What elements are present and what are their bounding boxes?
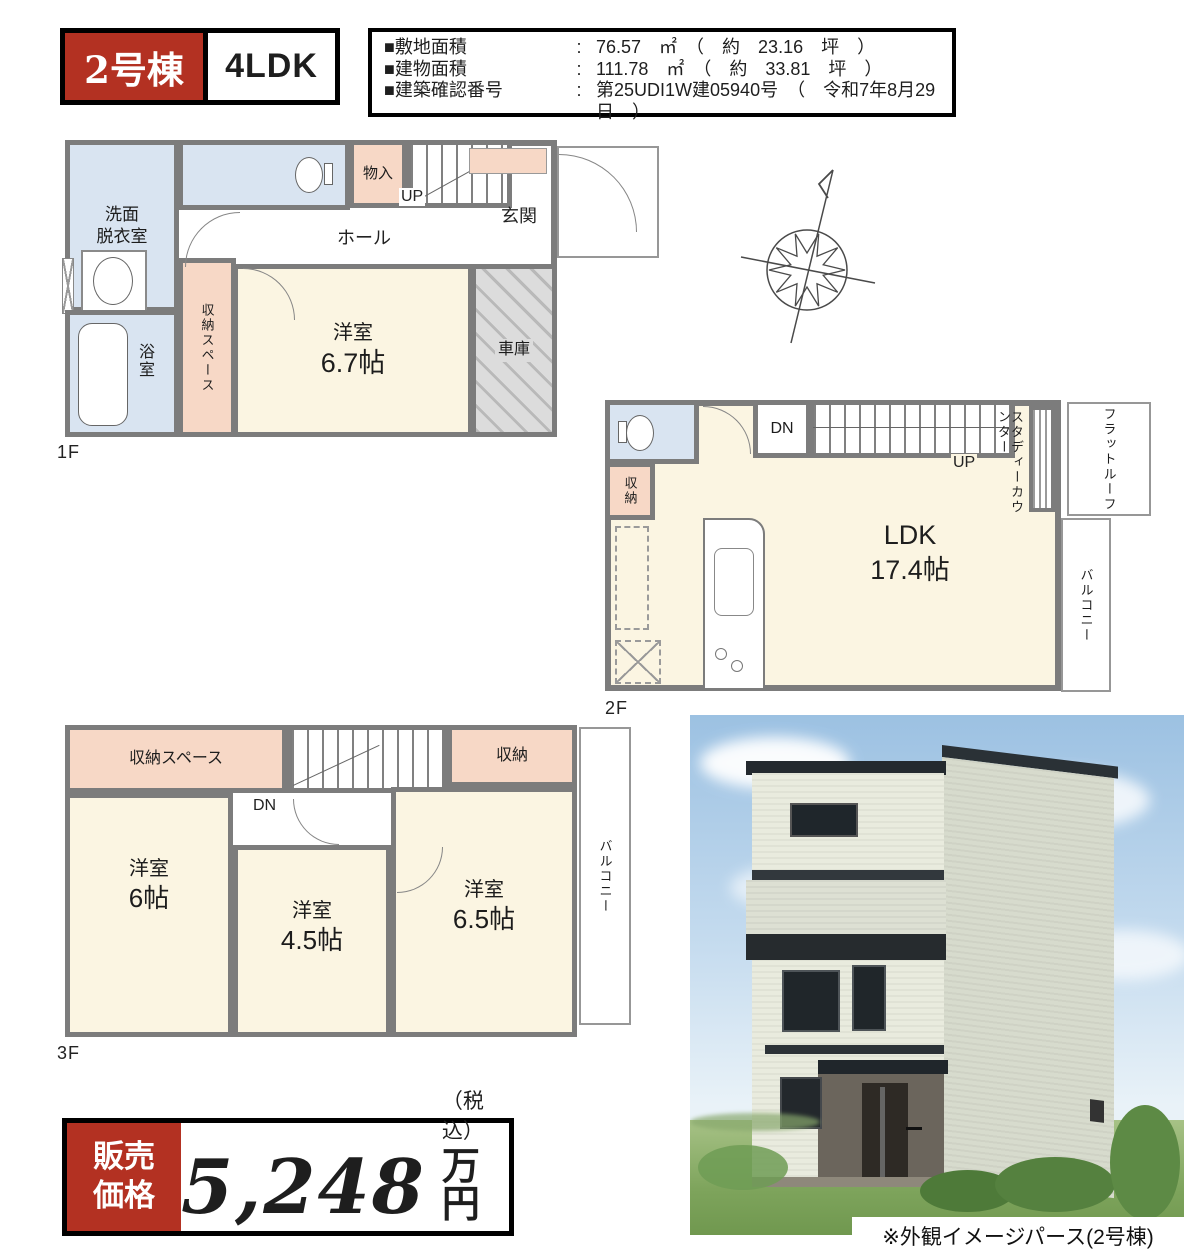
toilet-tank-icon (618, 421, 627, 443)
storage-label: 収納 (496, 746, 528, 767)
spec-row-permit-number: ■建築確認番号 : 第25UDI1W建05940号 （ 令和7年8月29日 ） (384, 80, 940, 123)
stove-burner-icon (731, 660, 743, 672)
spec-value: 76.57 ㎡ （ 約 23.16 坪 ） (596, 37, 940, 59)
room-size: 4.5帖 (281, 924, 343, 958)
floor-label-3f: 3F (57, 1043, 80, 1064)
stairs-down-label: DN (253, 797, 276, 815)
balcony-parapet (746, 880, 946, 934)
entrance-label: 玄関 (501, 202, 537, 228)
treeline (690, 1113, 820, 1131)
storage-space-label: 収納スペース (201, 303, 214, 393)
layout-type-label: 4LDK (208, 33, 335, 100)
price-unit: 万円 (442, 1147, 509, 1223)
price-box: 販売 価格 5,248 （税込） 万円 (62, 1118, 514, 1236)
spec-value: 第25UDI1W建05940号 （ 令和7年8月29日 ） (596, 80, 940, 123)
1f-storage-space: 収納スペース (178, 258, 236, 437)
spec-label: ■敷地面積 (384, 37, 562, 59)
price-value-area: 5,248 （税込） 万円 (181, 1123, 509, 1231)
toilet-icon (626, 415, 654, 451)
3f-balcony: バルコニー (579, 727, 631, 1025)
washbasin-bowl-icon (93, 257, 133, 305)
room-size: 6.7帖 (321, 346, 386, 381)
bush (995, 1157, 1115, 1212)
kitchen-sink-icon (714, 548, 754, 616)
washroom-label-line2: 脱衣室 (97, 226, 148, 248)
tax-included-note: （税込） (442, 1085, 509, 1145)
spec-colon: : (562, 59, 596, 81)
floor-plan-3f: 収納スペース DN 収納 洋室 6帖 洋室 4.5帖 洋室 6.5帖 (65, 725, 645, 1065)
closet-label: 物入 (363, 164, 393, 184)
floor-label-1f: 1F (57, 442, 80, 463)
rendering-caption-text: ※外観イメージパース(2号棟) (882, 1221, 1154, 1251)
toilet-tank-icon (324, 163, 333, 185)
door-handle (906, 1127, 922, 1130)
second-floor-window-small (852, 965, 886, 1031)
ldk-label-block: LDK 17.4帖 (830, 518, 990, 588)
room-name: 洋室 (129, 856, 169, 882)
spec-row-building-area: ■建物面積 : 111.78 ㎡ （ 約 33.81 坪 ） (384, 59, 940, 81)
flat-roof: フラットルーフ (1067, 402, 1151, 516)
stove-burner-icon (715, 648, 727, 660)
property-spec-box: ■敷地面積 : 76.57 ㎡ （ 約 23.16 坪 ） ■建物面積 : 11… (368, 28, 956, 117)
1f-bathroom: 浴室 (65, 310, 179, 437)
room-size: 6.5帖 (453, 903, 515, 937)
3f-storage-space: 収納スペース (65, 725, 287, 793)
kitchen-counter (703, 518, 765, 690)
3f-storage: 収納 (447, 725, 577, 787)
door-glass-strip (880, 1087, 885, 1179)
flat-roof-label: フラットルーフ (1103, 407, 1116, 512)
spec-value: 111.78 ㎡ （ 約 33.81 坪 ） (596, 59, 940, 81)
pantry-space (615, 640, 661, 684)
storage-space-label: 収納スペース (129, 749, 223, 770)
room-name: 洋室 (333, 320, 373, 346)
study-counter (1029, 406, 1055, 512)
front-door (862, 1083, 908, 1183)
compass-north-icon (735, 158, 885, 368)
flyer-page: 2号棟 4LDK ■敷地面積 : 76.57 ㎡ （ 約 23.16 坪 ） ■… (0, 0, 1184, 1258)
appliance-space (615, 526, 649, 630)
2f-balcony: バルコニー (1061, 518, 1111, 692)
3f-staircase (287, 725, 447, 793)
balcony-rail-edge (752, 870, 944, 880)
porch-canopy (818, 1060, 948, 1074)
2f-stair-landing: DN (753, 400, 811, 458)
room-name: 洋室 (464, 877, 504, 903)
spec-colon: : (562, 37, 596, 59)
floor-label-2f: 2F (605, 698, 628, 719)
stairs-up-label: UP (399, 188, 425, 206)
floor-plan-2f: DN UP 収納 LDK 17.4帖 スタディーカウンター フラットルーフ バル… (605, 400, 1184, 720)
room-name: 洋室 (292, 898, 332, 924)
study-counter-label: スタディーカウンター (997, 410, 1023, 518)
room-size: 6帖 (129, 882, 169, 916)
spec-row-land-area: ■敷地面積 : 76.57 ㎡ （ 約 23.16 坪 ） (384, 37, 940, 59)
storage-label: 収納 (624, 476, 637, 506)
ldk-size: 17.4帖 (830, 553, 990, 588)
house-side-wall (942, 757, 1114, 1198)
second-floor-window (782, 970, 840, 1032)
balcony-underside-shadow (746, 934, 946, 960)
unit-number-label: 2号棟 (65, 33, 208, 100)
price-caption-line2: 価格 (93, 1177, 155, 1216)
bathroom-label: 浴室 (136, 343, 152, 379)
stairs-up-label: UP (951, 454, 977, 472)
stairs-down-label: DN (770, 419, 793, 440)
third-floor-window (790, 803, 858, 837)
1f-toilet-room (178, 140, 350, 210)
spec-colon: : (562, 80, 596, 123)
window-symbol (62, 258, 74, 314)
3f-western-room-65: 洋室 6.5帖 (391, 787, 577, 1037)
unit-badge: 2号棟 4LDK (60, 28, 340, 105)
washroom-label-line1: 洗面 (105, 204, 139, 226)
balcony-label: バルコニー (599, 839, 612, 914)
entry-canopy (469, 148, 547, 174)
3f-western-room-45: 洋室 4.5帖 (233, 845, 391, 1037)
1f-garage: 車庫 (471, 264, 557, 437)
2f-storage: 収納 (605, 462, 655, 520)
price-caption: 販売 価格 (67, 1123, 181, 1231)
ldk-name: LDK (830, 518, 990, 553)
3f-western-room-6: 洋室 6帖 (65, 793, 233, 1037)
price-caption-line1: 販売 (93, 1138, 155, 1177)
hall-label: ホール (337, 224, 391, 250)
rendering-caption: ※外観イメージパース(2号棟) (852, 1217, 1184, 1254)
washbasin (81, 250, 147, 312)
spec-label: ■建築確認番号 (384, 80, 562, 123)
floor-band (765, 1045, 944, 1054)
2f-toilet-room (605, 400, 699, 464)
tree (1110, 1105, 1180, 1220)
side-vent (1090, 1099, 1104, 1123)
price-amount: 5,248 (181, 1152, 426, 1223)
stair-direction-line (813, 427, 1009, 428)
garage-label: 車庫 (495, 339, 533, 362)
bush (698, 1145, 788, 1190)
bathtub-icon (78, 323, 128, 426)
balcony-label: バルコニー (1080, 568, 1093, 643)
toilet-icon (295, 157, 323, 193)
2f-staircase (809, 400, 1015, 458)
spec-label: ■建物面積 (384, 59, 562, 81)
floor-plan-1f: 洗面 脱衣室 物入 UP ホール 玄関 収納スペース 洋室 6.7帖 (65, 140, 670, 470)
exterior-rendering (690, 715, 1184, 1235)
